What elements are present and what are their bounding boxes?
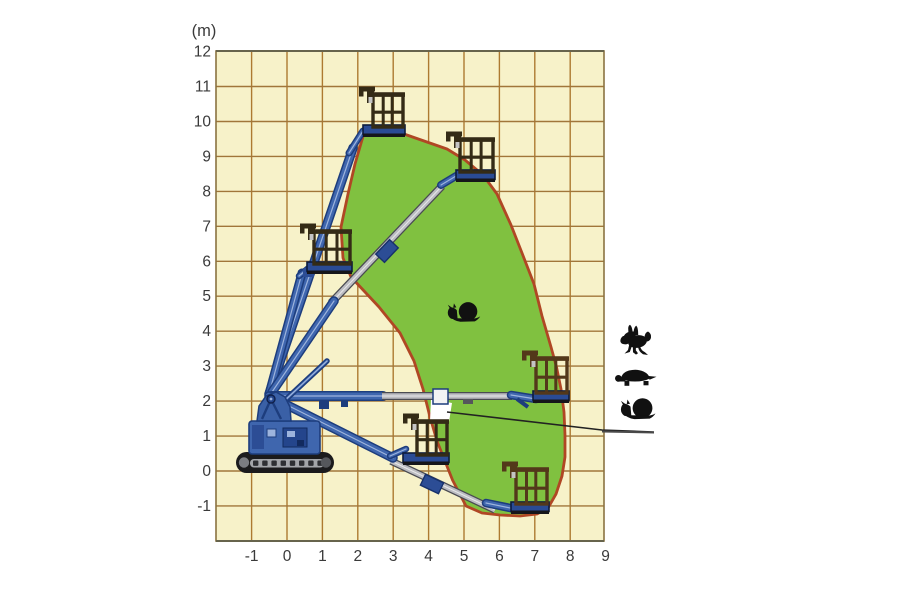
svg-text:-1: -1: [245, 548, 259, 565]
svg-text:5: 5: [202, 288, 211, 305]
svg-text:9: 9: [601, 548, 610, 565]
svg-text:8: 8: [566, 548, 575, 565]
svg-text:12: 12: [194, 44, 211, 61]
svg-text:3: 3: [389, 548, 398, 565]
svg-text:10: 10: [194, 114, 212, 131]
svg-text:4: 4: [202, 323, 211, 340]
svg-text:8: 8: [202, 183, 211, 200]
svg-text:6: 6: [202, 253, 211, 270]
svg-text:7: 7: [202, 218, 211, 235]
svg-text:9: 9: [202, 148, 211, 165]
svg-text:3: 3: [202, 358, 211, 375]
svg-text:5: 5: [460, 548, 469, 565]
svg-text:0: 0: [283, 548, 292, 565]
svg-text:(m): (m): [192, 22, 217, 40]
svg-text:2: 2: [353, 548, 362, 565]
svg-text:-1: -1: [197, 498, 211, 515]
svg-text:1: 1: [318, 548, 327, 565]
svg-text:7: 7: [530, 548, 539, 565]
svg-text:0: 0: [202, 463, 211, 480]
svg-text:4: 4: [424, 548, 433, 565]
svg-text:2: 2: [202, 393, 211, 410]
svg-text:6: 6: [495, 548, 504, 565]
svg-text:1: 1: [202, 428, 211, 445]
svg-text:11: 11: [195, 79, 211, 96]
